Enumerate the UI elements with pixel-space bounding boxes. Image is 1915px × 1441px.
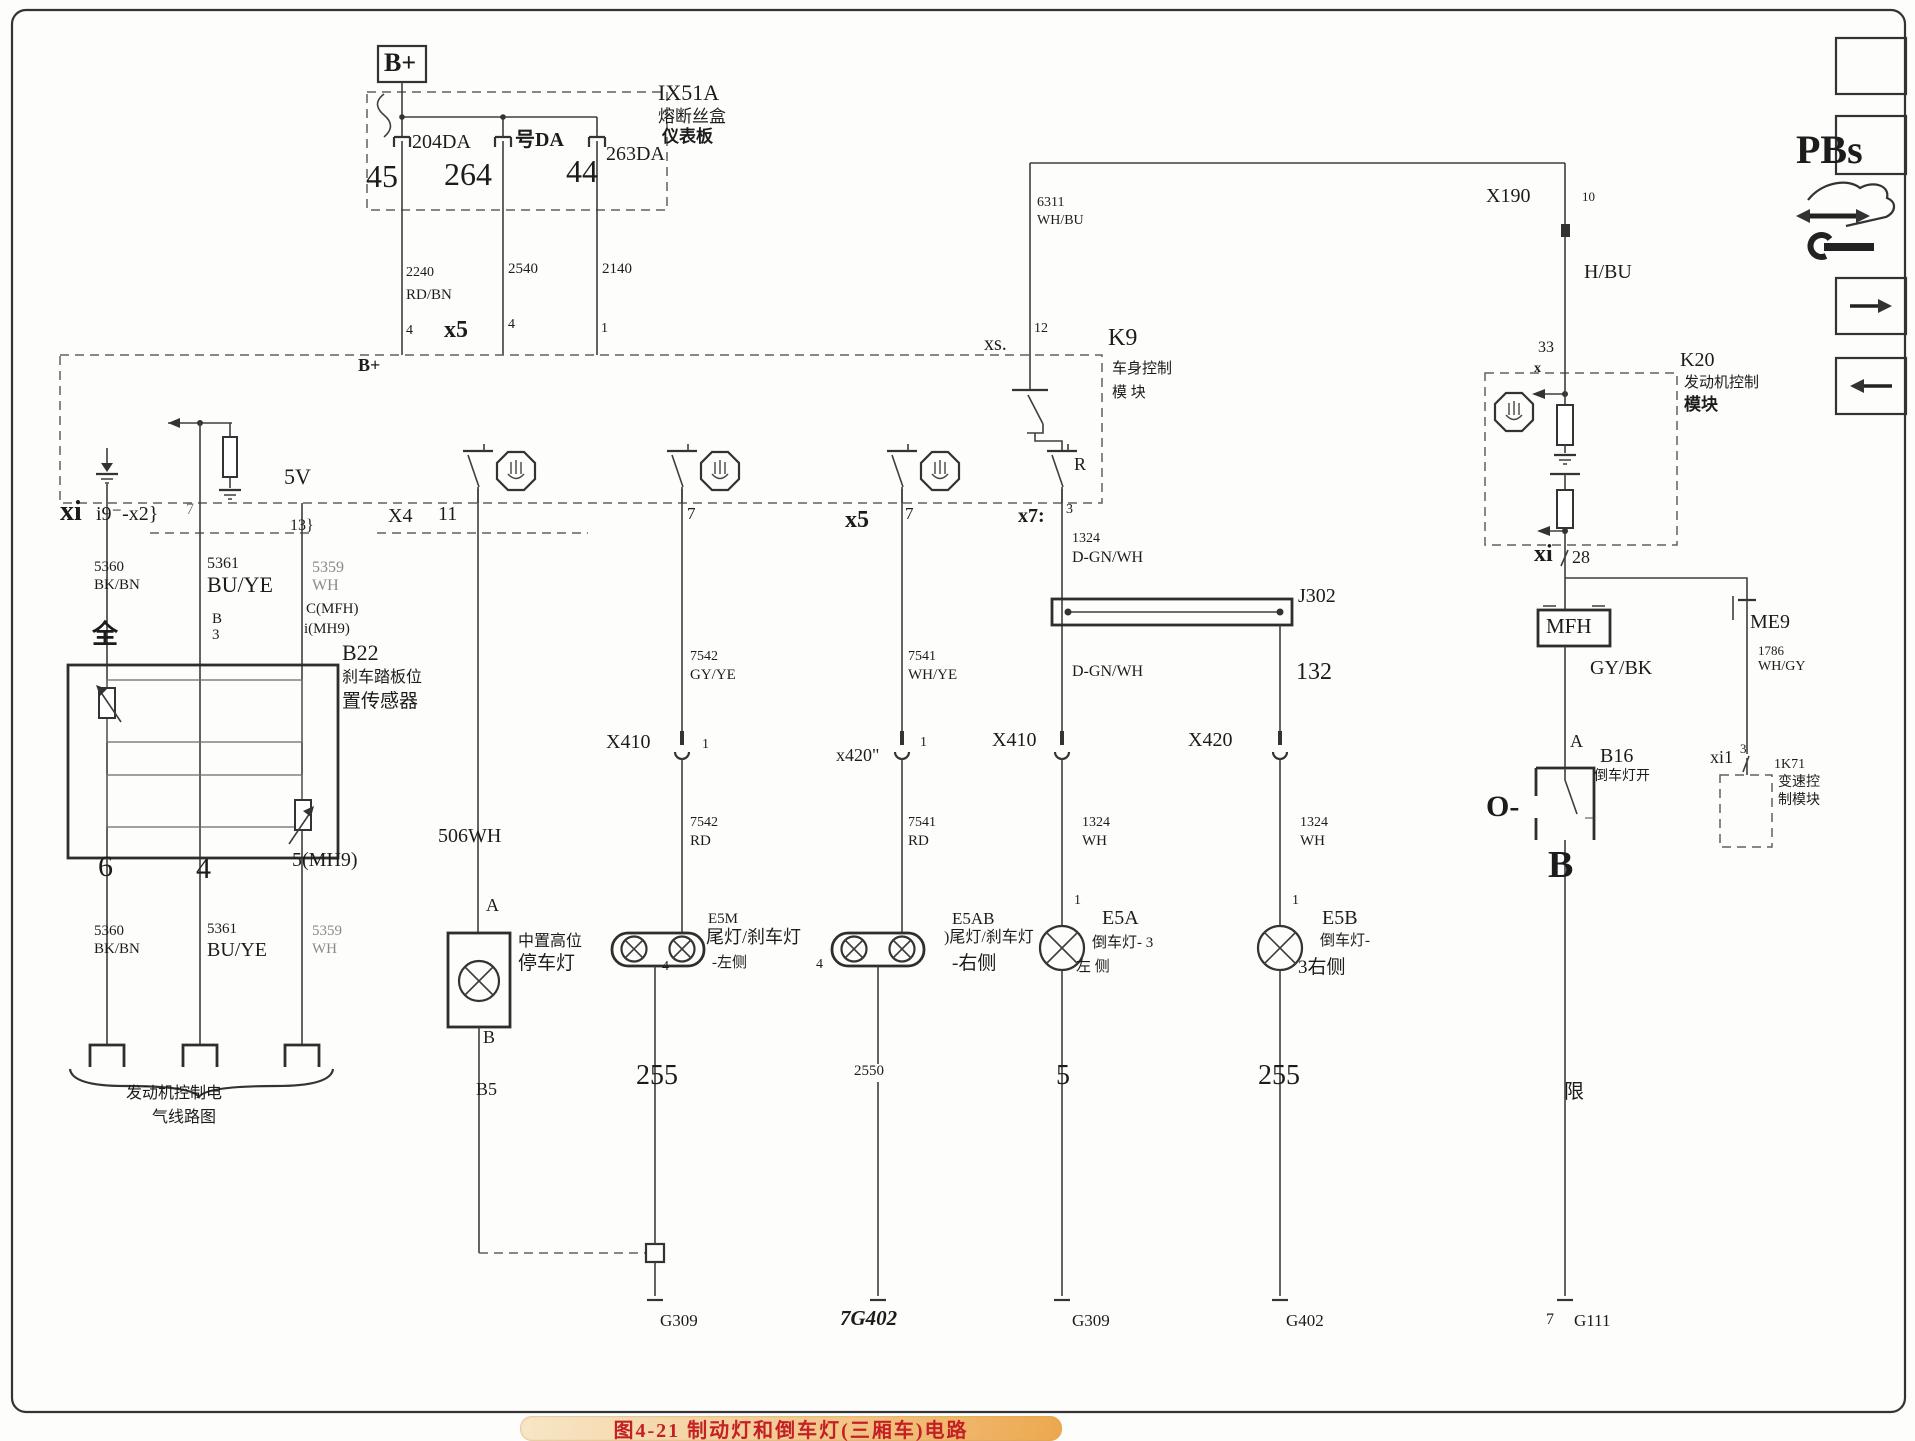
- pin-7-s3: 7: [905, 505, 914, 522]
- wire-5359-lower-color: WH: [312, 942, 337, 957]
- fuse2-pin: 264: [444, 158, 492, 190]
- me9-id: ME9: [1750, 612, 1790, 632]
- gnd-g402: G402: [1286, 1312, 1324, 1329]
- e5ab-name-2: -右侧: [952, 954, 996, 973]
- conn-x410-e5a: X410: [992, 730, 1036, 750]
- labels-layer: B+204DA45号DA264263DA44IX51A熔断丝盒仪表板2240RD…: [0, 0, 1915, 1441]
- fusebox-name-1: 熔断丝盒: [658, 108, 726, 125]
- wire-1786-color: WH/GY: [1758, 660, 1805, 674]
- wire-gybk: GY/BK: [1590, 658, 1652, 678]
- pin-4-e5ab: 4: [816, 958, 823, 972]
- fuse3-rating: 263DA: [606, 144, 665, 164]
- chmsl-name-1: 中置高位: [518, 934, 582, 950]
- pin-b-b16: B: [1548, 846, 1573, 884]
- wire-7541-upper: 7541: [908, 650, 936, 664]
- pin-28: 28: [1572, 548, 1590, 566]
- wire-1324-e5a: 1324: [1082, 816, 1110, 830]
- figure-caption-badge: 图4-21 制动灯和倒车灯(三厢车)电路: [520, 1416, 1062, 1441]
- wire-b5: B5: [476, 1080, 497, 1098]
- wire-2540: 2540: [508, 262, 538, 277]
- k71-name-2: 制模块: [1778, 794, 1820, 808]
- wire-1324-upper-color: D-GN/WH: [1072, 550, 1143, 566]
- pin-1-e5m: 1: [702, 738, 709, 752]
- pin-5mh9-b22: 5(MH9): [292, 850, 358, 870]
- pin-3-b22: 3: [212, 628, 220, 643]
- pin-11: 11: [438, 504, 457, 524]
- k9-name-1: 车身控制: [1112, 362, 1172, 377]
- wiring-diagram-page: B+204DA45号DA264263DA44IX51A熔断丝盒仪表板2240RD…: [0, 0, 1915, 1441]
- k9-name-2: 模 块: [1112, 386, 1146, 401]
- relay-r-label: R: [1074, 455, 1086, 473]
- conn-x410-e5m: X410: [606, 732, 650, 752]
- fuse1-rating: 204DA: [412, 132, 471, 152]
- pin-13: 13}: [290, 518, 314, 534]
- conn-x4: X4: [388, 506, 412, 526]
- k20-id: K20: [1680, 350, 1714, 370]
- fusebox-name-2: 仪表板: [662, 128, 713, 145]
- wire-dgnwh-lower: D-GN/WH: [1072, 664, 1143, 680]
- wire-xian: 限: [1564, 1082, 1584, 1102]
- k9-id: K9: [1108, 326, 1137, 350]
- wire-1786: 1786: [1758, 644, 1784, 657]
- pin-1-top: 1: [601, 322, 608, 336]
- pin-1-e5b: 1: [1292, 894, 1299, 908]
- e5b-id: E5B: [1322, 908, 1358, 928]
- e5a-name-1: 倒车灯- 3: [1092, 936, 1153, 951]
- wire-5359-lower: 5359: [312, 924, 342, 939]
- fuse3-pin: 44: [566, 155, 598, 187]
- pin-a-chmsl: A: [486, 896, 499, 914]
- wire-5361-upper-color: BU/YE: [207, 574, 273, 596]
- gnd-7g402: 7G402: [840, 1308, 897, 1329]
- pin-3-xi1: 3: [1740, 742, 1747, 755]
- wire-7542-upper: 7542: [690, 650, 718, 664]
- wire-5359-upper-color: WH: [312, 578, 339, 594]
- pin-4-mid: 4: [508, 318, 515, 332]
- label-5v: 5V: [284, 466, 311, 488]
- b16-id: B16: [1600, 746, 1633, 766]
- pin-3-s4: 3: [1066, 503, 1073, 517]
- conn-x5-s3: x5: [845, 508, 869, 532]
- wire-7541-lower: 7541: [908, 816, 936, 830]
- wire-5361-lower-color: BU/YE: [207, 940, 267, 960]
- conn-x420-quote: x420": [836, 746, 879, 764]
- chmsl-name-2: 停车灯: [518, 954, 575, 973]
- conn-xs: xs.: [984, 334, 1007, 354]
- wire-5359-upper: 5359: [312, 560, 344, 576]
- e5a-name-2: 左 侧: [1076, 960, 1110, 975]
- b16-name: 倒车灯开: [1594, 770, 1650, 784]
- pin-1-e5a: 1: [1074, 894, 1081, 908]
- k71-name-1: 变速控: [1778, 776, 1820, 790]
- pin-4-b22: 4: [196, 854, 211, 884]
- wire-5361-lower: 5361: [207, 922, 237, 937]
- b16-o-label: O-: [1486, 792, 1519, 822]
- pin-7-g111: 7: [1546, 1312, 1554, 1328]
- conn-x420-e5b: X420: [1188, 730, 1232, 750]
- pin-x-k20: x: [1534, 362, 1541, 376]
- ecm-note-2: 气线路图: [152, 1110, 216, 1126]
- conn-x7: x7:: [1018, 506, 1045, 526]
- wire-5360-upper: 5360: [94, 560, 124, 575]
- pin-c-mfh: C(MFH): [306, 602, 359, 617]
- b22-id: B22: [342, 642, 379, 664]
- wire-7541-lower-color: RD: [908, 834, 929, 849]
- pin-6-b22: 6: [98, 852, 113, 882]
- figure-caption: 图4-21 制动灯和倒车灯(三厢车)电路: [614, 1414, 969, 1441]
- j302-id: J302: [1298, 586, 1336, 606]
- wire-1324-e5b-color: WH: [1300, 834, 1325, 849]
- pin-i-mh9: i(MH9): [304, 622, 350, 637]
- gnd-g111: G111: [1574, 1312, 1611, 1329]
- fuse2-rating: 号DA: [515, 130, 564, 150]
- wire-132: 132: [1296, 660, 1332, 684]
- wire-1324-upper: 1324: [1072, 532, 1100, 546]
- wire-2550: 2550: [854, 1064, 884, 1079]
- conn-xi1: xi1: [1710, 748, 1733, 766]
- wire-1324-e5a-color: WH: [1082, 834, 1107, 849]
- wire-6311: 6311: [1037, 196, 1064, 210]
- e5m-name-1: 尾灯/刹车灯: [706, 928, 801, 946]
- wire-506wh: 506WH: [438, 826, 501, 846]
- pin-a-b16: A: [1570, 732, 1583, 750]
- wire-hbu: H/BU: [1584, 262, 1632, 282]
- wire-255-e5b: 255: [1258, 1062, 1300, 1090]
- pin-quan: 全: [92, 622, 118, 648]
- pin-7-left: 7: [186, 502, 194, 518]
- pin-12: 12: [1034, 322, 1048, 336]
- e5m-id: E5M: [708, 912, 738, 927]
- wire-7542-lower: 7542: [690, 816, 718, 830]
- wire-5360-lower: 5360: [94, 924, 124, 939]
- e5b-name-1: 倒车灯-: [1320, 934, 1370, 949]
- conn-xi-left: xi: [60, 498, 82, 526]
- k20-name-1: 发动机控制: [1684, 376, 1759, 391]
- wire-1324-e5b: 1324: [1300, 816, 1328, 830]
- wire-6311-color: WH/BU: [1037, 214, 1084, 228]
- conn-x190: X190: [1486, 186, 1530, 206]
- bplus-top-label: B+: [384, 50, 416, 76]
- ecm-note-1: 发动机控制电: [126, 1086, 222, 1102]
- mfh-label: MFH: [1546, 616, 1592, 637]
- pin-b-b22: B: [212, 612, 222, 627]
- b22-name-1: 刹车踏板位: [342, 670, 422, 686]
- wire-5360-lower-color: BK/BN: [94, 942, 140, 957]
- pin-7-s2: 7: [687, 505, 696, 522]
- wire-2240: 2240: [406, 266, 434, 280]
- e5b-name-2: 3右侧: [1298, 958, 1346, 977]
- legend-pbs: PBs: [1796, 130, 1863, 170]
- k71-id: 1K71: [1774, 758, 1805, 772]
- e5a-id: E5A: [1102, 908, 1139, 928]
- b22-name-2: 置传感器: [342, 692, 418, 711]
- e5ab-id: E5AB: [952, 910, 995, 927]
- conn-i9x2: i9⁻-x2}: [96, 504, 158, 524]
- conn-xi-right: xi: [1534, 542, 1553, 566]
- e5ab-name-1: )尾灯/刹车灯: [944, 930, 1034, 946]
- wire-7542-lower-color: RD: [690, 834, 711, 849]
- pin-33: 33: [1538, 340, 1554, 356]
- gnd-g309-a: G309: [660, 1312, 698, 1329]
- wire-2240-color: RD/BN: [406, 288, 452, 303]
- conn-x5-top: x5: [444, 318, 468, 342]
- wire-5360-upper-color: BK/BN: [94, 578, 140, 593]
- wire-7541-upper-color: WH/YE: [908, 668, 957, 683]
- gnd-g309-b: G309: [1072, 1312, 1110, 1329]
- wire-255-e5m: 255: [636, 1062, 678, 1090]
- wire-2140: 2140: [602, 262, 632, 277]
- pin-1-e5ab: 1: [920, 736, 927, 750]
- pin-b-chmsl: B: [483, 1028, 495, 1046]
- k20-name-2: 模块: [1684, 396, 1718, 413]
- pin-4-e5m: 4: [662, 960, 669, 974]
- fusebox-id: IX51A: [658, 82, 719, 104]
- wire-7542-upper-color: GY/YE: [690, 668, 736, 683]
- wire-5-e5a: 5: [1056, 1062, 1070, 1090]
- wire-5361-upper: 5361: [207, 556, 239, 572]
- pin-10: 10: [1582, 190, 1595, 203]
- pin-4-left: 4: [406, 324, 413, 338]
- bplus-bus-label: B+: [358, 356, 380, 374]
- fuse1-pin: 45: [366, 160, 398, 192]
- e5m-name-2: -左侧: [712, 956, 747, 971]
